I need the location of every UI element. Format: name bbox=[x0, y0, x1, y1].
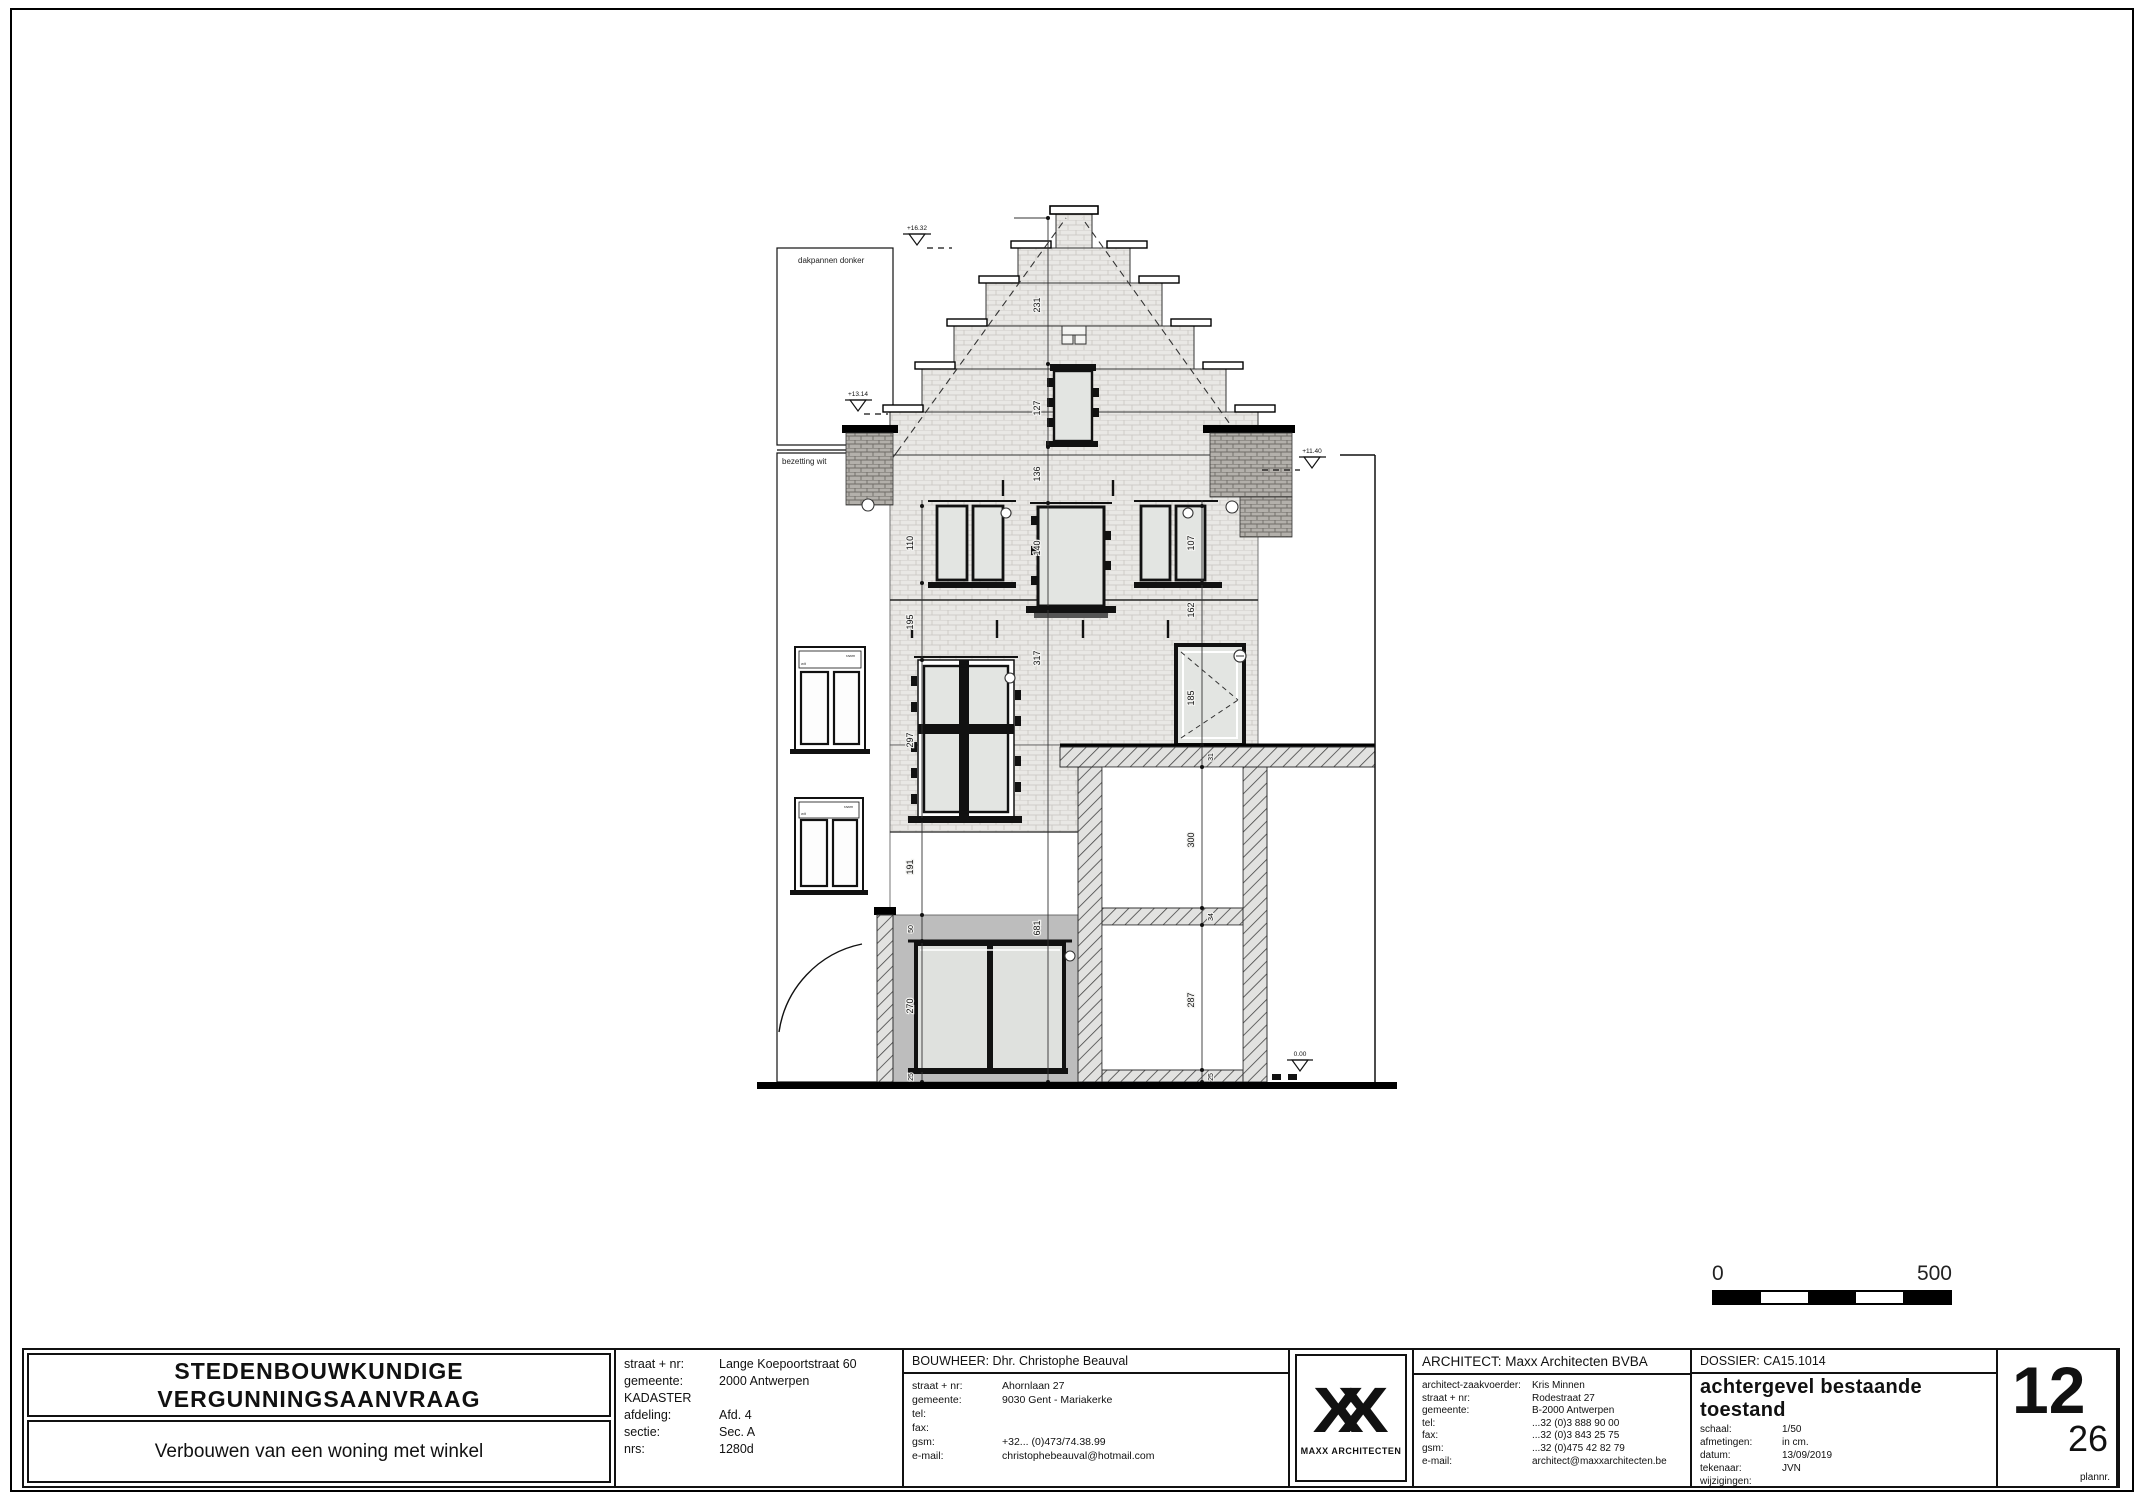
dim-107: 107 bbox=[1186, 535, 1196, 550]
field-label: wijzigingen: bbox=[1700, 1475, 1782, 1488]
level-ground: 0.00 bbox=[1272, 1051, 1313, 1080]
field-label: sectie: bbox=[624, 1424, 719, 1441]
scale-bar-segments bbox=[1712, 1290, 1952, 1305]
annex-section bbox=[1060, 745, 1375, 1082]
project-title-section: STEDENBOUWKUNDIGE VERGUNNINGSAANVRAAG Ve… bbox=[24, 1350, 616, 1486]
field-label: afdeling: bbox=[624, 1407, 719, 1424]
dim-25-annex: 25 bbox=[1208, 1073, 1215, 1081]
gable-window bbox=[1046, 364, 1099, 447]
drawing-sheet: dakpannen donker bezetting wit raam wit … bbox=[0, 0, 2144, 1500]
dim-317: 317 bbox=[1032, 650, 1042, 665]
dossier-header: DOSSIER: CA15.1014 bbox=[1692, 1350, 1996, 1374]
dim-34: 34 bbox=[1208, 913, 1215, 921]
svg-text:+11.40: +11.40 bbox=[1302, 448, 1322, 455]
field-value: 2000 Antwerpen bbox=[719, 1373, 809, 1390]
field-value: architect@maxxarchitecten.be bbox=[1532, 1456, 1667, 1469]
dim-136: 136 bbox=[1032, 466, 1042, 481]
field-label: straat + nr: bbox=[624, 1356, 719, 1373]
dim-140: 140 bbox=[1032, 540, 1042, 555]
field-label: afmetingen: bbox=[1700, 1436, 1782, 1449]
field-value: 13/09/2019 bbox=[1782, 1449, 1832, 1462]
scale-start: 0 bbox=[1712, 1262, 1724, 1286]
field-label: fax: bbox=[912, 1421, 1002, 1435]
right-boundary-line bbox=[1340, 455, 1375, 1082]
architect-logo: XX MAXX ARCHITECTEN bbox=[1290, 1350, 1414, 1486]
field-label: gsm: bbox=[912, 1435, 1002, 1449]
shopfront bbox=[874, 907, 1080, 1082]
project-description: Verbouwen van een woning met winkel bbox=[27, 1420, 611, 1483]
field-value: ...32 (0)475 42 82 79 bbox=[1532, 1443, 1625, 1456]
field-value: in cm. bbox=[1782, 1436, 1809, 1449]
neighbor-left: dakpannen donker bezetting wit raam wit … bbox=[777, 248, 893, 1082]
dim-681: 681 bbox=[1032, 920, 1042, 935]
field-value: Ahornlaan 27 bbox=[1002, 1379, 1064, 1393]
sheet-total: 26 bbox=[2068, 1418, 2108, 1460]
dim-25: 25 bbox=[908, 1073, 915, 1081]
roof-material-label: dakpannen donker bbox=[798, 256, 865, 265]
field-label: gemeente: bbox=[1422, 1405, 1532, 1418]
rear-elevation-drawing: dakpannen donker bezetting wit raam wit … bbox=[740, 130, 1420, 1110]
dim-127: 127 bbox=[1032, 400, 1042, 415]
dim-110: 110 bbox=[905, 536, 915, 550]
field-value: ...32 (0)3 888 90 00 bbox=[1532, 1418, 1619, 1431]
permit-title-line2: VERGUNNINGSAANVRAAG bbox=[29, 1385, 609, 1413]
field-label: straat + nr: bbox=[912, 1379, 1002, 1393]
dossier-section: DOSSIER: CA15.1014 achtergevel bestaande… bbox=[1692, 1350, 1998, 1486]
field-label: schaal: bbox=[1700, 1423, 1782, 1436]
field-label: KADASTER bbox=[624, 1390, 719, 1407]
dim-297: 297 bbox=[905, 732, 915, 747]
svg-text:+13.14: +13.14 bbox=[848, 391, 868, 398]
maxx-logo-icon: XX bbox=[1313, 1380, 1389, 1440]
level-gable-top: +16.32 bbox=[903, 225, 952, 248]
field-label: fax: bbox=[1422, 1430, 1532, 1443]
neighbor-window-lower: raam wit bbox=[790, 798, 868, 895]
field-value: +32... (0)473/74.38.99 bbox=[1002, 1435, 1106, 1449]
maxx-logo-name: MAXX ARCHITECTEN bbox=[1301, 1446, 1402, 1456]
field-label: e-mail: bbox=[912, 1449, 1002, 1463]
field-label: datum: bbox=[1700, 1449, 1782, 1462]
window-note: raam bbox=[846, 653, 856, 658]
field-value: B-2000 Antwerpen bbox=[1532, 1405, 1614, 1418]
dim-270: 270 bbox=[905, 998, 915, 1013]
field-label: tel: bbox=[912, 1407, 1002, 1421]
svg-text:+16.32: +16.32 bbox=[907, 225, 927, 232]
dim-195: 195 bbox=[905, 614, 915, 629]
field-value: ...32 (0)3 843 25 75 bbox=[1532, 1430, 1619, 1443]
plaster-label: bezetting wit bbox=[782, 457, 827, 466]
field-value: Lange Koepoortstraat 60 bbox=[719, 1356, 857, 1373]
field-value: 9030 Gent - Mariakerke bbox=[1002, 1393, 1112, 1407]
dim-231: 231 bbox=[1032, 297, 1042, 312]
field-value: JVN bbox=[1782, 1462, 1801, 1475]
window-note: raam bbox=[844, 804, 854, 809]
field-value: 1/50 bbox=[1782, 1423, 1801, 1436]
bouwheer-header: BOUWHEER: Dhr. Christophe Beauval bbox=[904, 1350, 1288, 1374]
field-label: gemeente: bbox=[624, 1373, 719, 1390]
chimney bbox=[1056, 214, 1092, 248]
field-value: christophebeauval@hotmail.com bbox=[1002, 1449, 1155, 1463]
field-label: tekenaar: bbox=[1700, 1462, 1782, 1475]
dim-31: 31 bbox=[1208, 753, 1215, 761]
field-value: Kris Minnen bbox=[1532, 1380, 1585, 1393]
field-label: e-mail: bbox=[1422, 1456, 1532, 1469]
permit-title-line1: STEDENBOUWKUNDIGE bbox=[29, 1357, 609, 1385]
architect-header: ARCHITECT: Maxx Architecten BVBA bbox=[1414, 1350, 1690, 1375]
window-center bbox=[1026, 503, 1116, 618]
sheet-number-section: 12 26 plannr. bbox=[1998, 1350, 2118, 1486]
field-label: straat + nr: bbox=[1422, 1393, 1532, 1406]
sheet-number-caption: plannr. bbox=[2080, 1472, 2110, 1483]
architect-section: ARCHITECT: Maxx Architecten BVBA archite… bbox=[1414, 1350, 1692, 1486]
field-label: gemeente: bbox=[912, 1393, 1002, 1407]
field-label: gsm: bbox=[1422, 1443, 1532, 1456]
dim-287: 287 bbox=[1186, 992, 1196, 1007]
scale-bar: 0 500 bbox=[1712, 1262, 1952, 1305]
dim-185: 185 bbox=[1186, 690, 1196, 705]
field-label: nrs: bbox=[624, 1441, 719, 1458]
dim-300: 300 bbox=[1186, 832, 1196, 847]
bouwheer-section: BOUWHEER: Dhr. Christophe Beauval straat… bbox=[904, 1350, 1290, 1486]
dim-162: 162 bbox=[1186, 602, 1196, 617]
field-label: architect-zaakvoerder: bbox=[1422, 1380, 1532, 1393]
cross-window bbox=[908, 657, 1022, 823]
ground-line bbox=[757, 1082, 1397, 1089]
field-value: Rodestraat 27 bbox=[1532, 1393, 1595, 1406]
svg-text:0.00: 0.00 bbox=[1294, 1051, 1307, 1058]
field-value: 1280d bbox=[719, 1441, 754, 1458]
title-block: STEDENBOUWKUNDIGE VERGUNNINGSAANVRAAG Ve… bbox=[22, 1348, 2120, 1488]
sheet-number: 12 bbox=[2012, 1352, 2085, 1428]
dim-50: 50 bbox=[908, 925, 915, 933]
scale-end: 500 bbox=[1917, 1262, 1952, 1286]
field-label: tel: bbox=[1422, 1418, 1532, 1431]
kadaster-section: straat + nr:Lange Koepoortstraat 60 geme… bbox=[616, 1350, 904, 1486]
dim-191: 191 bbox=[905, 859, 915, 874]
neighbor-window-upper: raam wit bbox=[790, 647, 870, 754]
field-value: Afd. 4 bbox=[719, 1407, 752, 1424]
field-value: Sec. A bbox=[719, 1424, 755, 1441]
sheet-title: achtergevel bestaande toestand bbox=[1692, 1374, 1996, 1423]
